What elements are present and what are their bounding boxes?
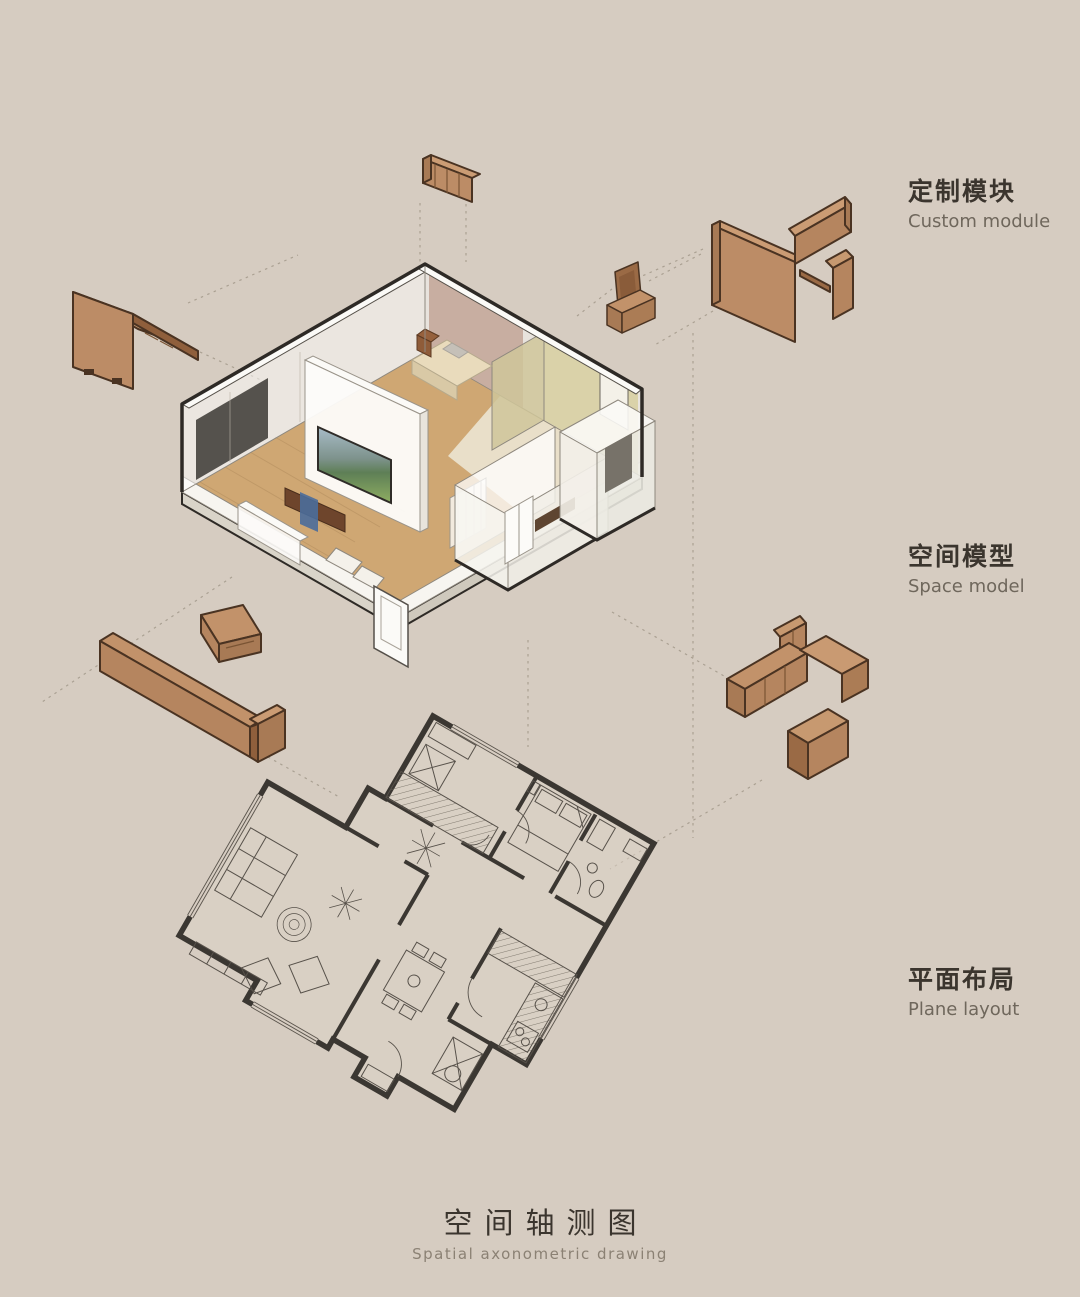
label-plane-layout: 平面布局 Plane layout bbox=[908, 960, 1019, 1020]
page-title-zh: 空间轴测图 bbox=[0, 1200, 1080, 1242]
page-title: 空间轴测图 Spatial axonometric drawing bbox=[0, 1200, 1080, 1263]
label-custom-module-en: Custom module bbox=[908, 211, 1050, 232]
label-space-model-en: Space model bbox=[908, 576, 1025, 597]
label-custom-module-zh: 定制模块 bbox=[908, 172, 1050, 208]
label-plane-layout-zh: 平面布局 bbox=[908, 960, 1019, 996]
presentation-board: 定制模块 Custom module 空间模型 Space model 平面布局… bbox=[0, 0, 1080, 1297]
page-title-en: Spatial axonometric drawing bbox=[0, 1245, 1080, 1263]
label-space-model: 空间模型 Space model bbox=[908, 537, 1025, 597]
label-space-model-zh: 空间模型 bbox=[908, 537, 1025, 573]
label-plane-layout-en: Plane layout bbox=[908, 999, 1019, 1020]
label-custom-module: 定制模块 Custom module bbox=[908, 172, 1050, 232]
